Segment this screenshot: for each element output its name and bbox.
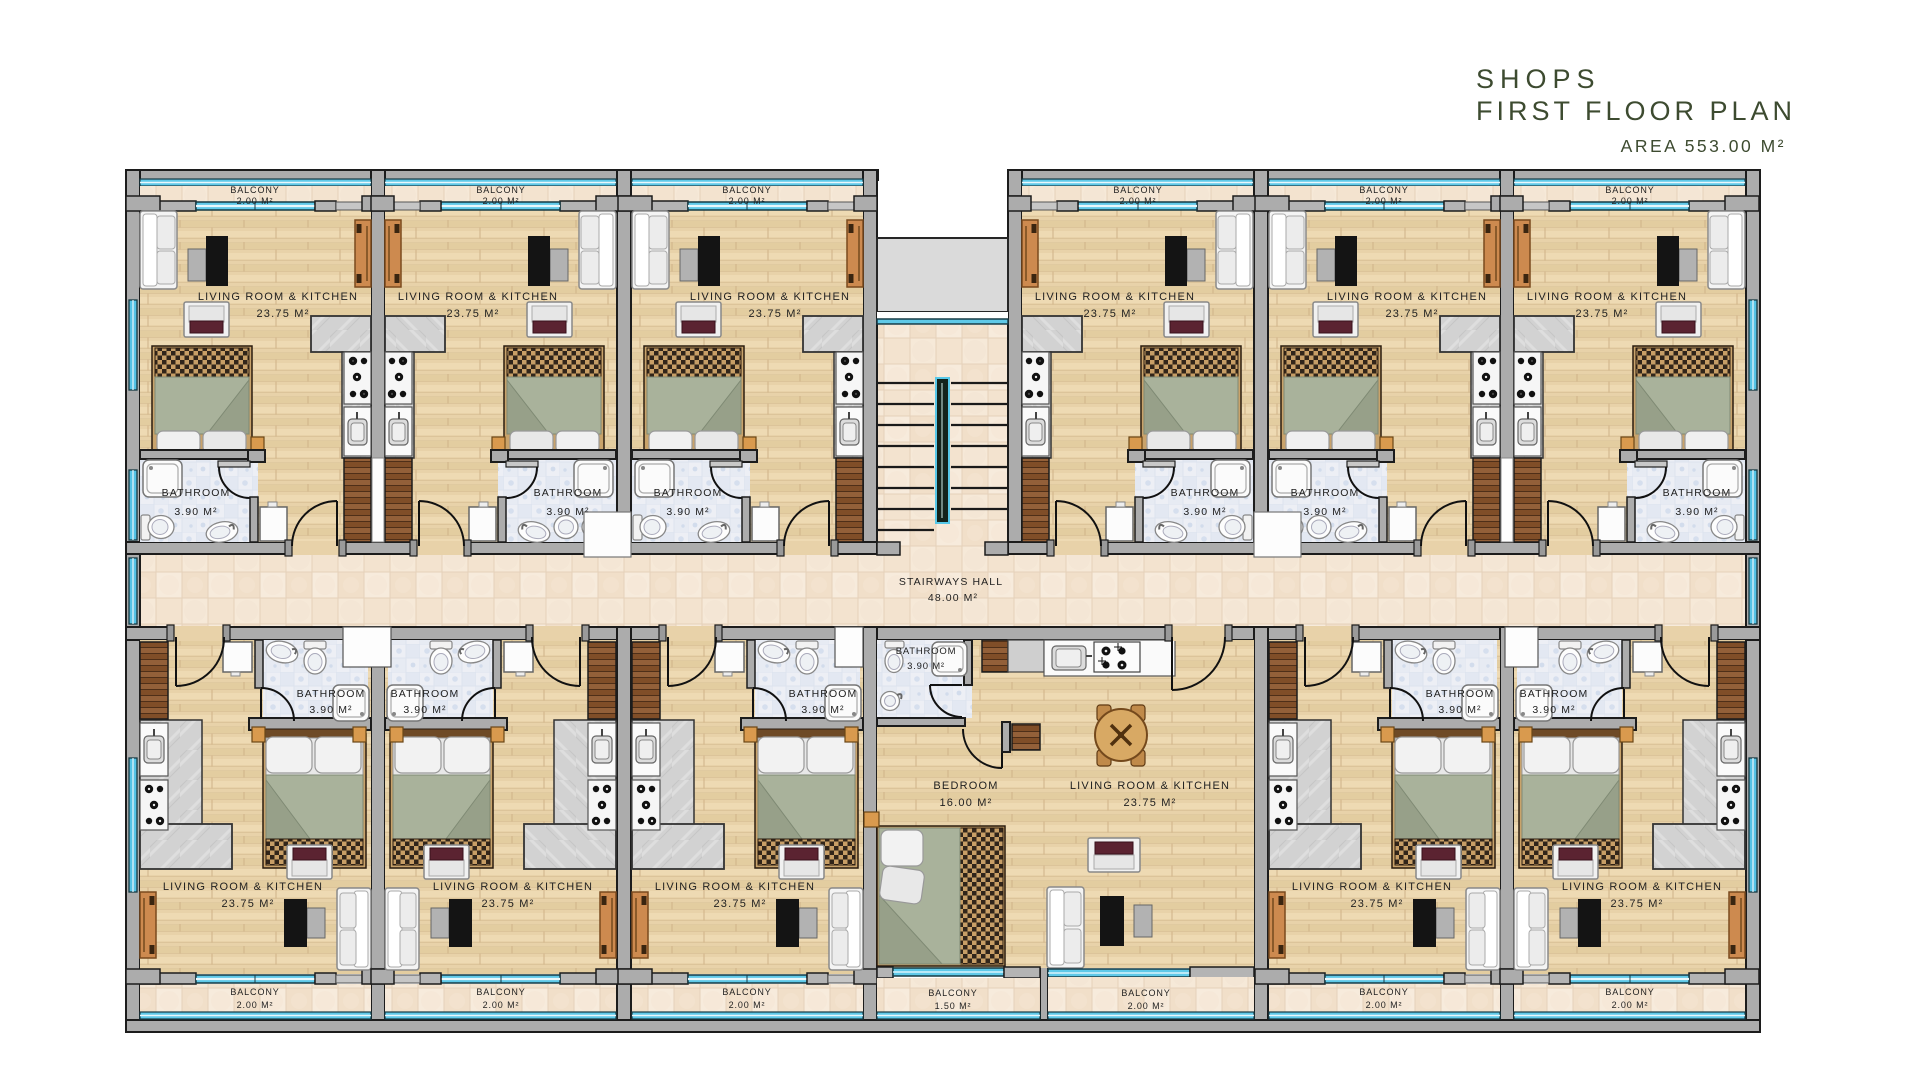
svg-text:LIVING ROOM & KITCHEN: LIVING ROOM & KITCHEN: [1292, 881, 1452, 893]
svg-text:BALCONY: BALCONY: [1605, 185, 1654, 195]
svg-text:AREA 553.00 M²: AREA 553.00 M²: [1621, 136, 1786, 156]
svg-text:BATHROOM: BATHROOM: [1426, 688, 1495, 700]
svg-text:BALCONY: BALCONY: [1605, 987, 1654, 997]
svg-text:BATHROOM: BATHROOM: [1520, 688, 1589, 700]
svg-text:2.00 M²: 2.00 M²: [1366, 1000, 1403, 1010]
svg-text:2.00 M²: 2.00 M²: [1120, 196, 1157, 206]
svg-text:STAIRWAYS HALL: STAIRWAYS HALL: [899, 576, 1003, 588]
svg-text:BATHROOM: BATHROOM: [162, 487, 231, 499]
svg-text:BATHROOM: BATHROOM: [297, 688, 366, 700]
svg-text:LIVING ROOM & KITCHEN: LIVING ROOM & KITCHEN: [655, 881, 815, 893]
svg-text:LIVING ROOM & KITCHEN: LIVING ROOM & KITCHEN: [1527, 291, 1687, 303]
svg-text:23.75 M²: 23.75 M²: [221, 898, 274, 910]
svg-text:BATHROOM: BATHROOM: [1291, 487, 1360, 499]
svg-text:3.90 M²: 3.90 M²: [801, 704, 844, 716]
svg-text:BALCONY: BALCONY: [230, 987, 279, 997]
svg-text:23.75 M²: 23.75 M²: [1385, 308, 1438, 320]
svg-text:3.90 M²: 3.90 M²: [1438, 704, 1481, 716]
svg-text:LIVING ROOM & KITCHEN: LIVING ROOM & KITCHEN: [1035, 291, 1195, 303]
svg-text:2.00 M²: 2.00 M²: [237, 196, 274, 206]
svg-text:BALCONY: BALCONY: [476, 987, 525, 997]
svg-text:2.00 M²: 2.00 M²: [729, 1000, 766, 1010]
svg-text:23.75 M²: 23.75 M²: [1575, 308, 1628, 320]
svg-text:BATHROOM: BATHROOM: [391, 688, 460, 700]
svg-text:2.00 M²: 2.00 M²: [237, 1000, 274, 1010]
svg-text:23.75 M²: 23.75 M²: [446, 308, 499, 320]
svg-text:BATHROOM: BATHROOM: [1171, 487, 1240, 499]
svg-text:48.00 M²: 48.00 M²: [928, 592, 978, 604]
svg-text:3.90 M²: 3.90 M²: [1303, 506, 1346, 518]
svg-text:LIVING ROOM & KITCHEN: LIVING ROOM & KITCHEN: [163, 881, 323, 893]
svg-text:FIRST FLOOR PLAN: FIRST FLOOR PLAN: [1476, 96, 1796, 126]
svg-text:3.90 M²: 3.90 M²: [403, 704, 446, 716]
svg-text:SHOPS: SHOPS: [1476, 64, 1601, 94]
svg-text:2.00 M²: 2.00 M²: [483, 1000, 520, 1010]
svg-text:23.75 M²: 23.75 M²: [256, 308, 309, 320]
svg-text:23.75 M²: 23.75 M²: [748, 308, 801, 320]
svg-text:LIVING ROOM & KITCHEN: LIVING ROOM & KITCHEN: [398, 291, 558, 303]
svg-text:23.75 M²: 23.75 M²: [481, 898, 534, 910]
svg-text:BALCONY: BALCONY: [1113, 185, 1162, 195]
svg-text:BALCONY: BALCONY: [1359, 987, 1408, 997]
svg-text:3.90 M²: 3.90 M²: [1675, 506, 1718, 518]
svg-text:LIVING ROOM & KITCHEN: LIVING ROOM & KITCHEN: [1562, 881, 1722, 893]
svg-text:BALCONY: BALCONY: [722, 987, 771, 997]
svg-text:2.00 M²: 2.00 M²: [1128, 1001, 1165, 1011]
svg-text:3.90 M²: 3.90 M²: [309, 704, 352, 716]
svg-text:BALCONY: BALCONY: [476, 185, 525, 195]
svg-text:BALCONY: BALCONY: [230, 185, 279, 195]
svg-text:3.90 M²: 3.90 M²: [546, 506, 589, 518]
svg-text:1.50 M²: 1.50 M²: [935, 1001, 972, 1011]
svg-text:BALCONY: BALCONY: [722, 185, 771, 195]
svg-text:BALCONY: BALCONY: [928, 988, 977, 998]
svg-text:16.00 M²: 16.00 M²: [939, 797, 992, 809]
svg-text:23.75 M²: 23.75 M²: [1350, 898, 1403, 910]
svg-text:3.90 M²: 3.90 M²: [907, 661, 945, 672]
svg-text:2.00 M²: 2.00 M²: [483, 196, 520, 206]
svg-text:BATHROOM: BATHROOM: [534, 487, 603, 499]
svg-text:2.00 M²: 2.00 M²: [1612, 1000, 1649, 1010]
svg-text:BATHROOM: BATHROOM: [896, 646, 957, 657]
svg-text:BATHROOM: BATHROOM: [1663, 487, 1732, 499]
svg-text:BALCONY: BALCONY: [1121, 988, 1170, 998]
svg-text:LIVING ROOM & KITCHEN: LIVING ROOM & KITCHEN: [198, 291, 358, 303]
svg-text:23.75 M²: 23.75 M²: [1610, 898, 1663, 910]
svg-text:23.75 M²: 23.75 M²: [713, 898, 766, 910]
svg-text:23.75 M²: 23.75 M²: [1083, 308, 1136, 320]
svg-text:BATHROOM: BATHROOM: [789, 688, 858, 700]
svg-text:3.90 M²: 3.90 M²: [1532, 704, 1575, 716]
svg-text:BATHROOM: BATHROOM: [654, 487, 723, 499]
svg-text:LIVING ROOM & KITCHEN: LIVING ROOM & KITCHEN: [1070, 780, 1230, 792]
svg-text:LIVING ROOM & KITCHEN: LIVING ROOM & KITCHEN: [433, 881, 593, 893]
svg-text:LIVING ROOM & KITCHEN: LIVING ROOM & KITCHEN: [1327, 291, 1487, 303]
svg-text:BEDROOM: BEDROOM: [933, 780, 998, 792]
svg-text:3.90 M²: 3.90 M²: [1183, 506, 1226, 518]
svg-text:2.00 M²: 2.00 M²: [1366, 196, 1403, 206]
svg-text:LIVING ROOM & KITCHEN: LIVING ROOM & KITCHEN: [690, 291, 850, 303]
svg-text:BALCONY: BALCONY: [1359, 185, 1408, 195]
svg-text:23.75 M²: 23.75 M²: [1123, 797, 1176, 809]
svg-text:3.90 M²: 3.90 M²: [174, 506, 217, 518]
svg-text:2.00 M²: 2.00 M²: [1612, 196, 1649, 206]
svg-text:2.00 M²: 2.00 M²: [729, 196, 766, 206]
svg-text:3.90 M²: 3.90 M²: [666, 506, 709, 518]
